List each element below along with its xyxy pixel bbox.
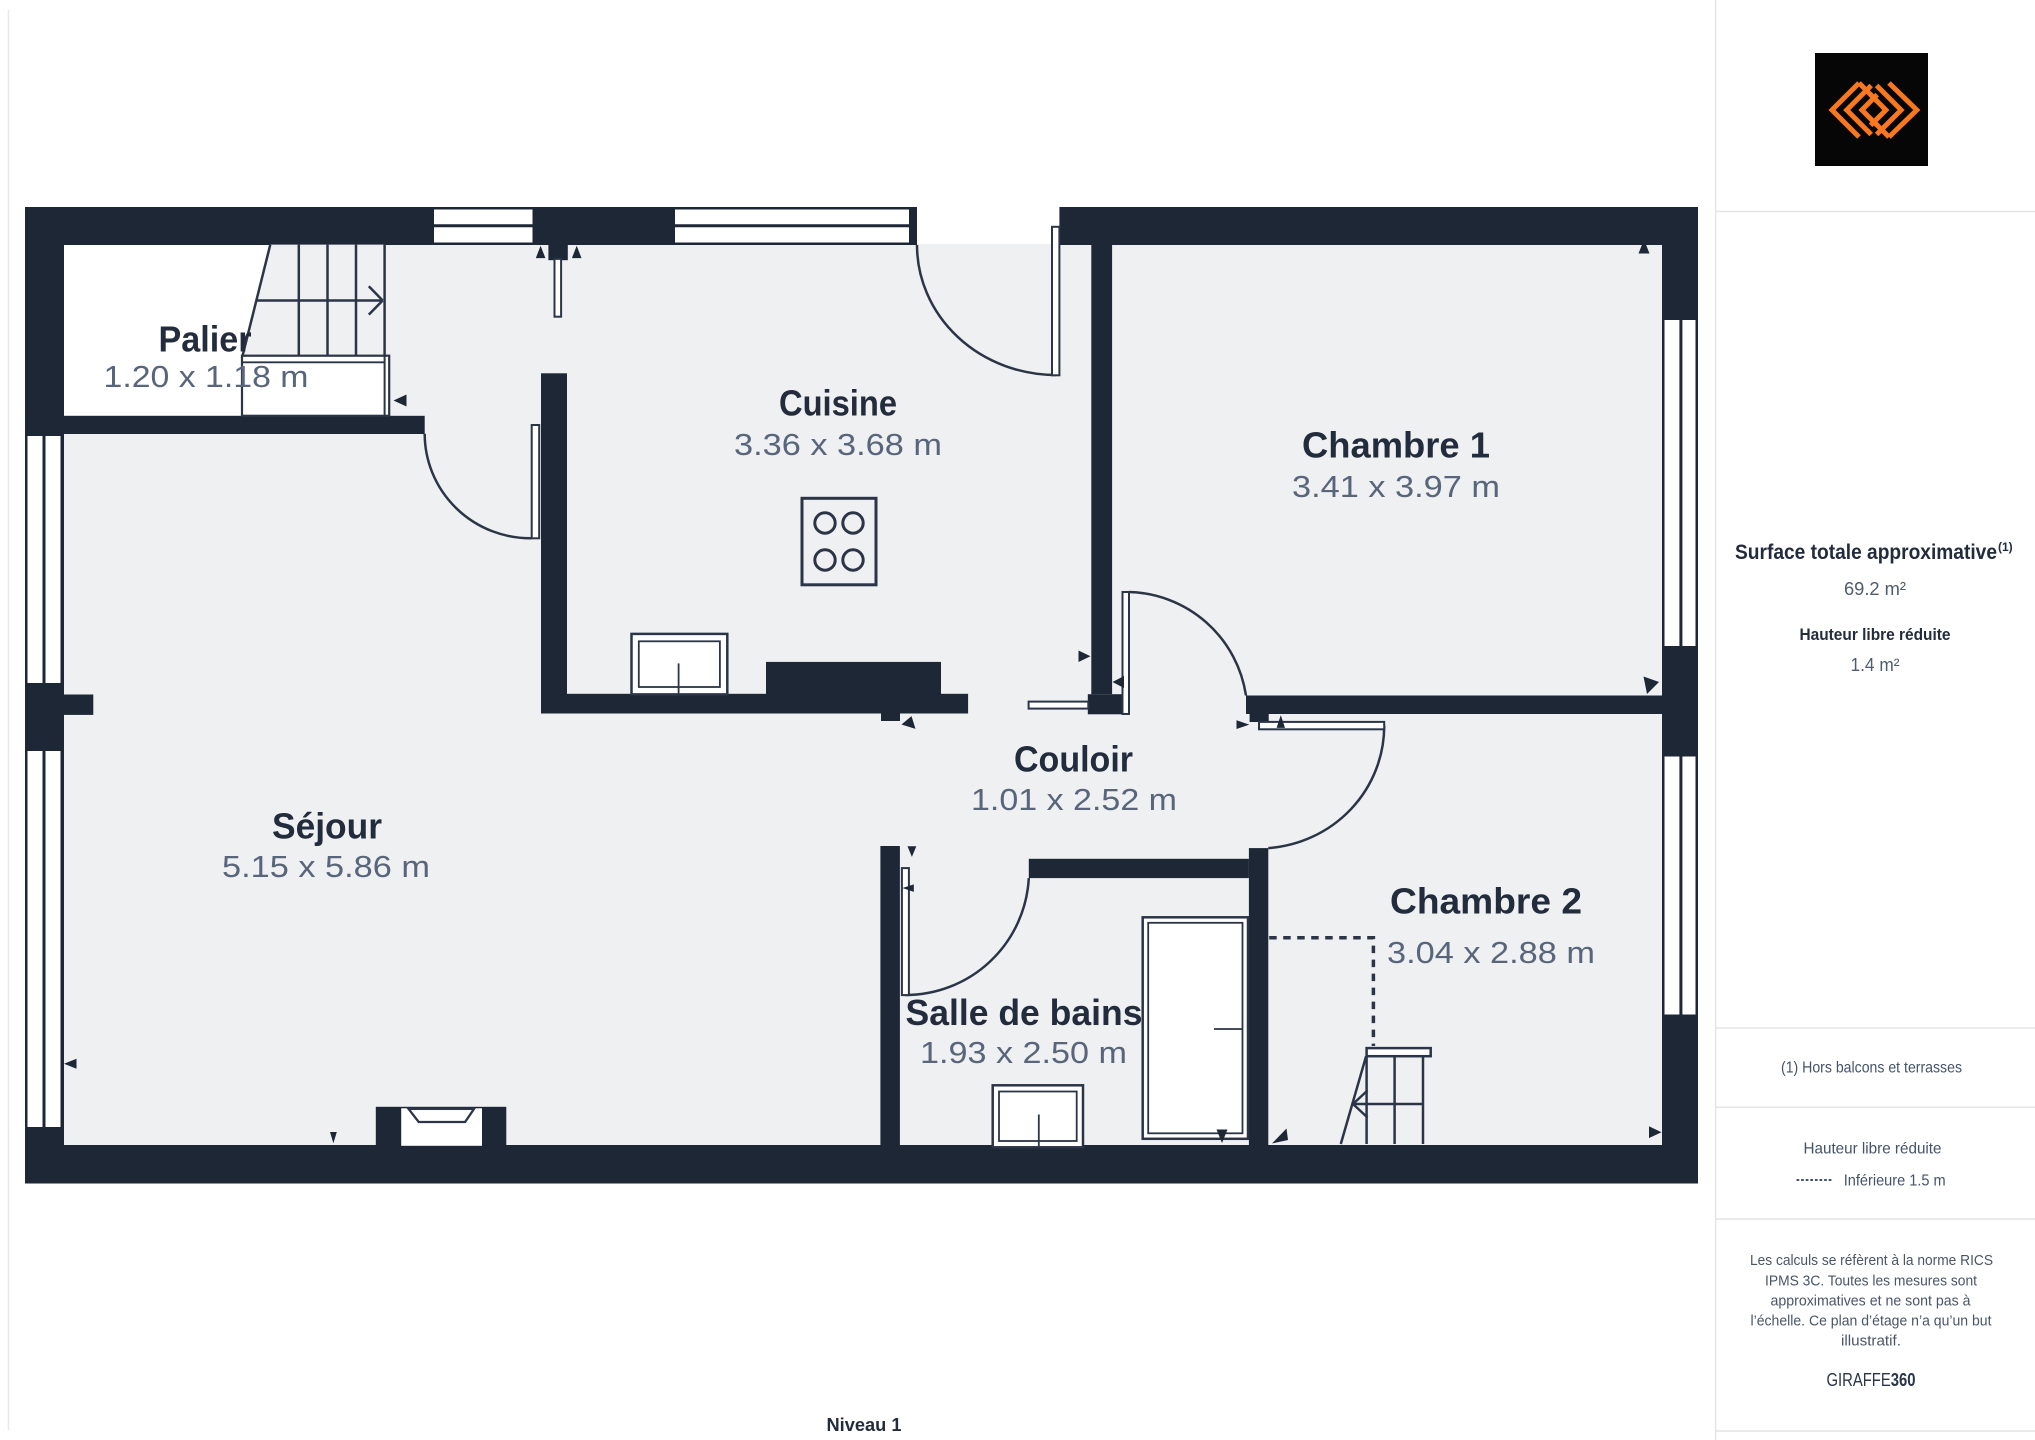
svg-text:Chambre 2: Chambre 2: [1390, 881, 1582, 922]
svg-text:Hauteur libre réduite: Hauteur libre réduite: [1804, 1141, 1942, 1158]
svg-text:Chambre 1: Chambre 1: [1302, 425, 1490, 466]
svg-text:Salle de bains: Salle de bains: [906, 992, 1143, 1033]
svg-text:Niveau 1: Niveau 1: [827, 1415, 902, 1435]
svg-text:5.15 x 5.86 m: 5.15 x 5.86 m: [222, 849, 430, 884]
svg-text:Les calculs se réfèrent à la n: Les calculs se réfèrent à la norme RICS: [1750, 1253, 1993, 1269]
svg-text:1.20 x 1.18 m: 1.20 x 1.18 m: [104, 359, 309, 394]
svg-text:l’échelle. Ce plan d’étage n’a: l’échelle. Ce plan d’étage n’a qu’un but: [1751, 1314, 1992, 1330]
svg-text:IPMS 3C. Toutes les mesures so: IPMS 3C. Toutes les mesures sont: [1765, 1274, 1977, 1290]
svg-text:1.01 x 2.52 m: 1.01 x 2.52 m: [971, 782, 1177, 817]
svg-text:Hauteur libre réduite: Hauteur libre réduite: [1800, 625, 1951, 644]
svg-text:Inférieure 1.5 m: Inférieure 1.5 m: [1844, 1173, 1946, 1190]
svg-text:Cuisine: Cuisine: [779, 383, 897, 424]
svg-text:illustratif.: illustratif.: [1841, 1334, 1901, 1350]
svg-text:69.2 m²: 69.2 m²: [1844, 578, 1906, 599]
svg-text:3.36 x 3.68 m: 3.36 x 3.68 m: [734, 427, 942, 462]
svg-text:approximatives et ne sont pas: approximatives et ne sont pas à: [1771, 1294, 1972, 1310]
svg-text:Couloir: Couloir: [1014, 739, 1133, 780]
svg-text:1.4 m²: 1.4 m²: [1851, 655, 1900, 675]
svg-text:Surface totale approximative: Surface totale approximative: [1735, 541, 1997, 564]
svg-text:(1) Hors balcons et terrasses: (1) Hors balcons et terrasses: [1781, 1060, 1962, 1077]
svg-text:3.04 x 2.88 m: 3.04 x 2.88 m: [1387, 935, 1595, 970]
svg-text:Séjour: Séjour: [272, 806, 382, 847]
svg-text:(1): (1): [1998, 540, 2013, 554]
svg-text:1.93 x 2.50 m: 1.93 x 2.50 m: [920, 1035, 1127, 1070]
svg-text:Palier: Palier: [159, 319, 252, 360]
svg-text:3.41 x 3.97 m: 3.41 x 3.97 m: [1292, 469, 1500, 504]
svg-text:GIRAFFE360: GIRAFFE360: [1827, 1370, 1916, 1390]
